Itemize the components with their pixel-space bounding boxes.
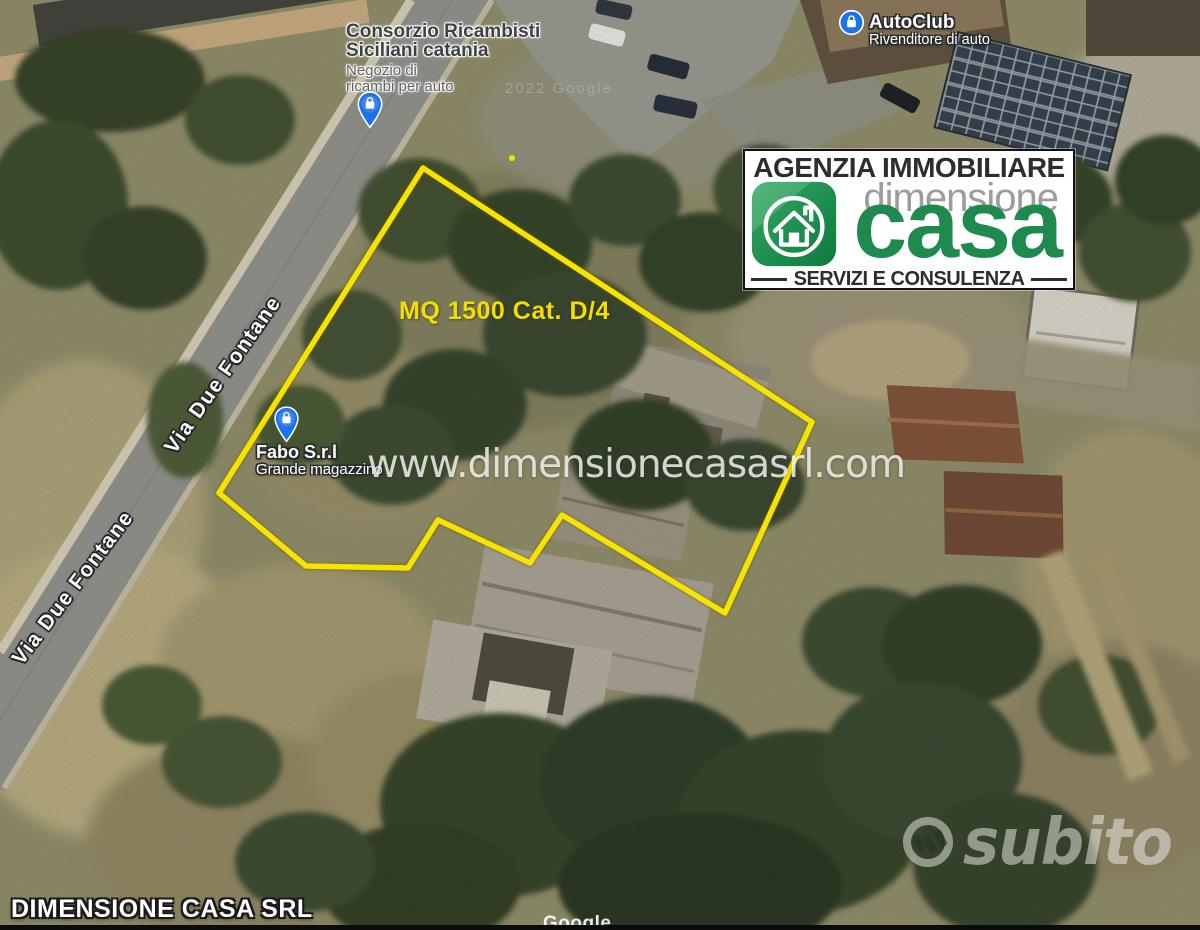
agency-tagline: SERVIZI E CONSULENZA <box>794 268 1025 291</box>
fabo-name: Fabo S.r.l <box>256 442 337 462</box>
autoclub-pin-icon <box>838 9 865 36</box>
consorzio-name-line1: Consorzio Ricambisti <box>346 21 540 42</box>
brand-name-main: casa <box>853 175 1061 272</box>
area-annotation: MQ 1500 Cat. D/4 <box>399 297 610 326</box>
property-boundary <box>219 168 812 613</box>
subito-wordmark: subito <box>963 815 1172 871</box>
fabo-pin-icon <box>273 406 300 443</box>
agency-tagline-row: SERVIZI E CONSULENZA <box>751 268 1067 291</box>
consorzio-subtitle-line1: Negozio di <box>346 63 540 79</box>
listing-map-screenshot: Consorzio Ricambisti Siciliani catania N… <box>0 0 1200 930</box>
tagline-rule-right <box>1031 278 1067 281</box>
website-watermark: www.dimensionecasasrl.com <box>367 442 905 487</box>
footer-label: DIMENSIONE CASA SRL <box>11 895 313 924</box>
fabo-label: Fabo S.r.l Grande magazzino <box>256 443 383 478</box>
subito-watermark: subito <box>903 815 1183 871</box>
tagline-rule-left <box>751 278 787 281</box>
bottom-bar <box>0 925 1200 930</box>
consorzio-name-line2: Siciliani catania <box>346 40 489 61</box>
subito-logo-icon <box>898 812 957 871</box>
boundary-dot <box>509 155 515 161</box>
imagery-credit: 2022 Google <box>505 80 613 97</box>
agency-logo-card: AGENZIA IMMOBILIARE dimensione casa <box>743 149 1075 290</box>
autoclub-label: AutoClub Rivenditore di auto <box>869 13 990 48</box>
agency-house-icon <box>751 181 837 267</box>
autoclub-subtitle: Rivenditore di auto <box>869 32 990 48</box>
autoclub-name: AutoClub <box>869 12 954 33</box>
fabo-subtitle: Grande magazzino <box>256 462 383 478</box>
consorzio-pin-icon <box>356 91 384 129</box>
